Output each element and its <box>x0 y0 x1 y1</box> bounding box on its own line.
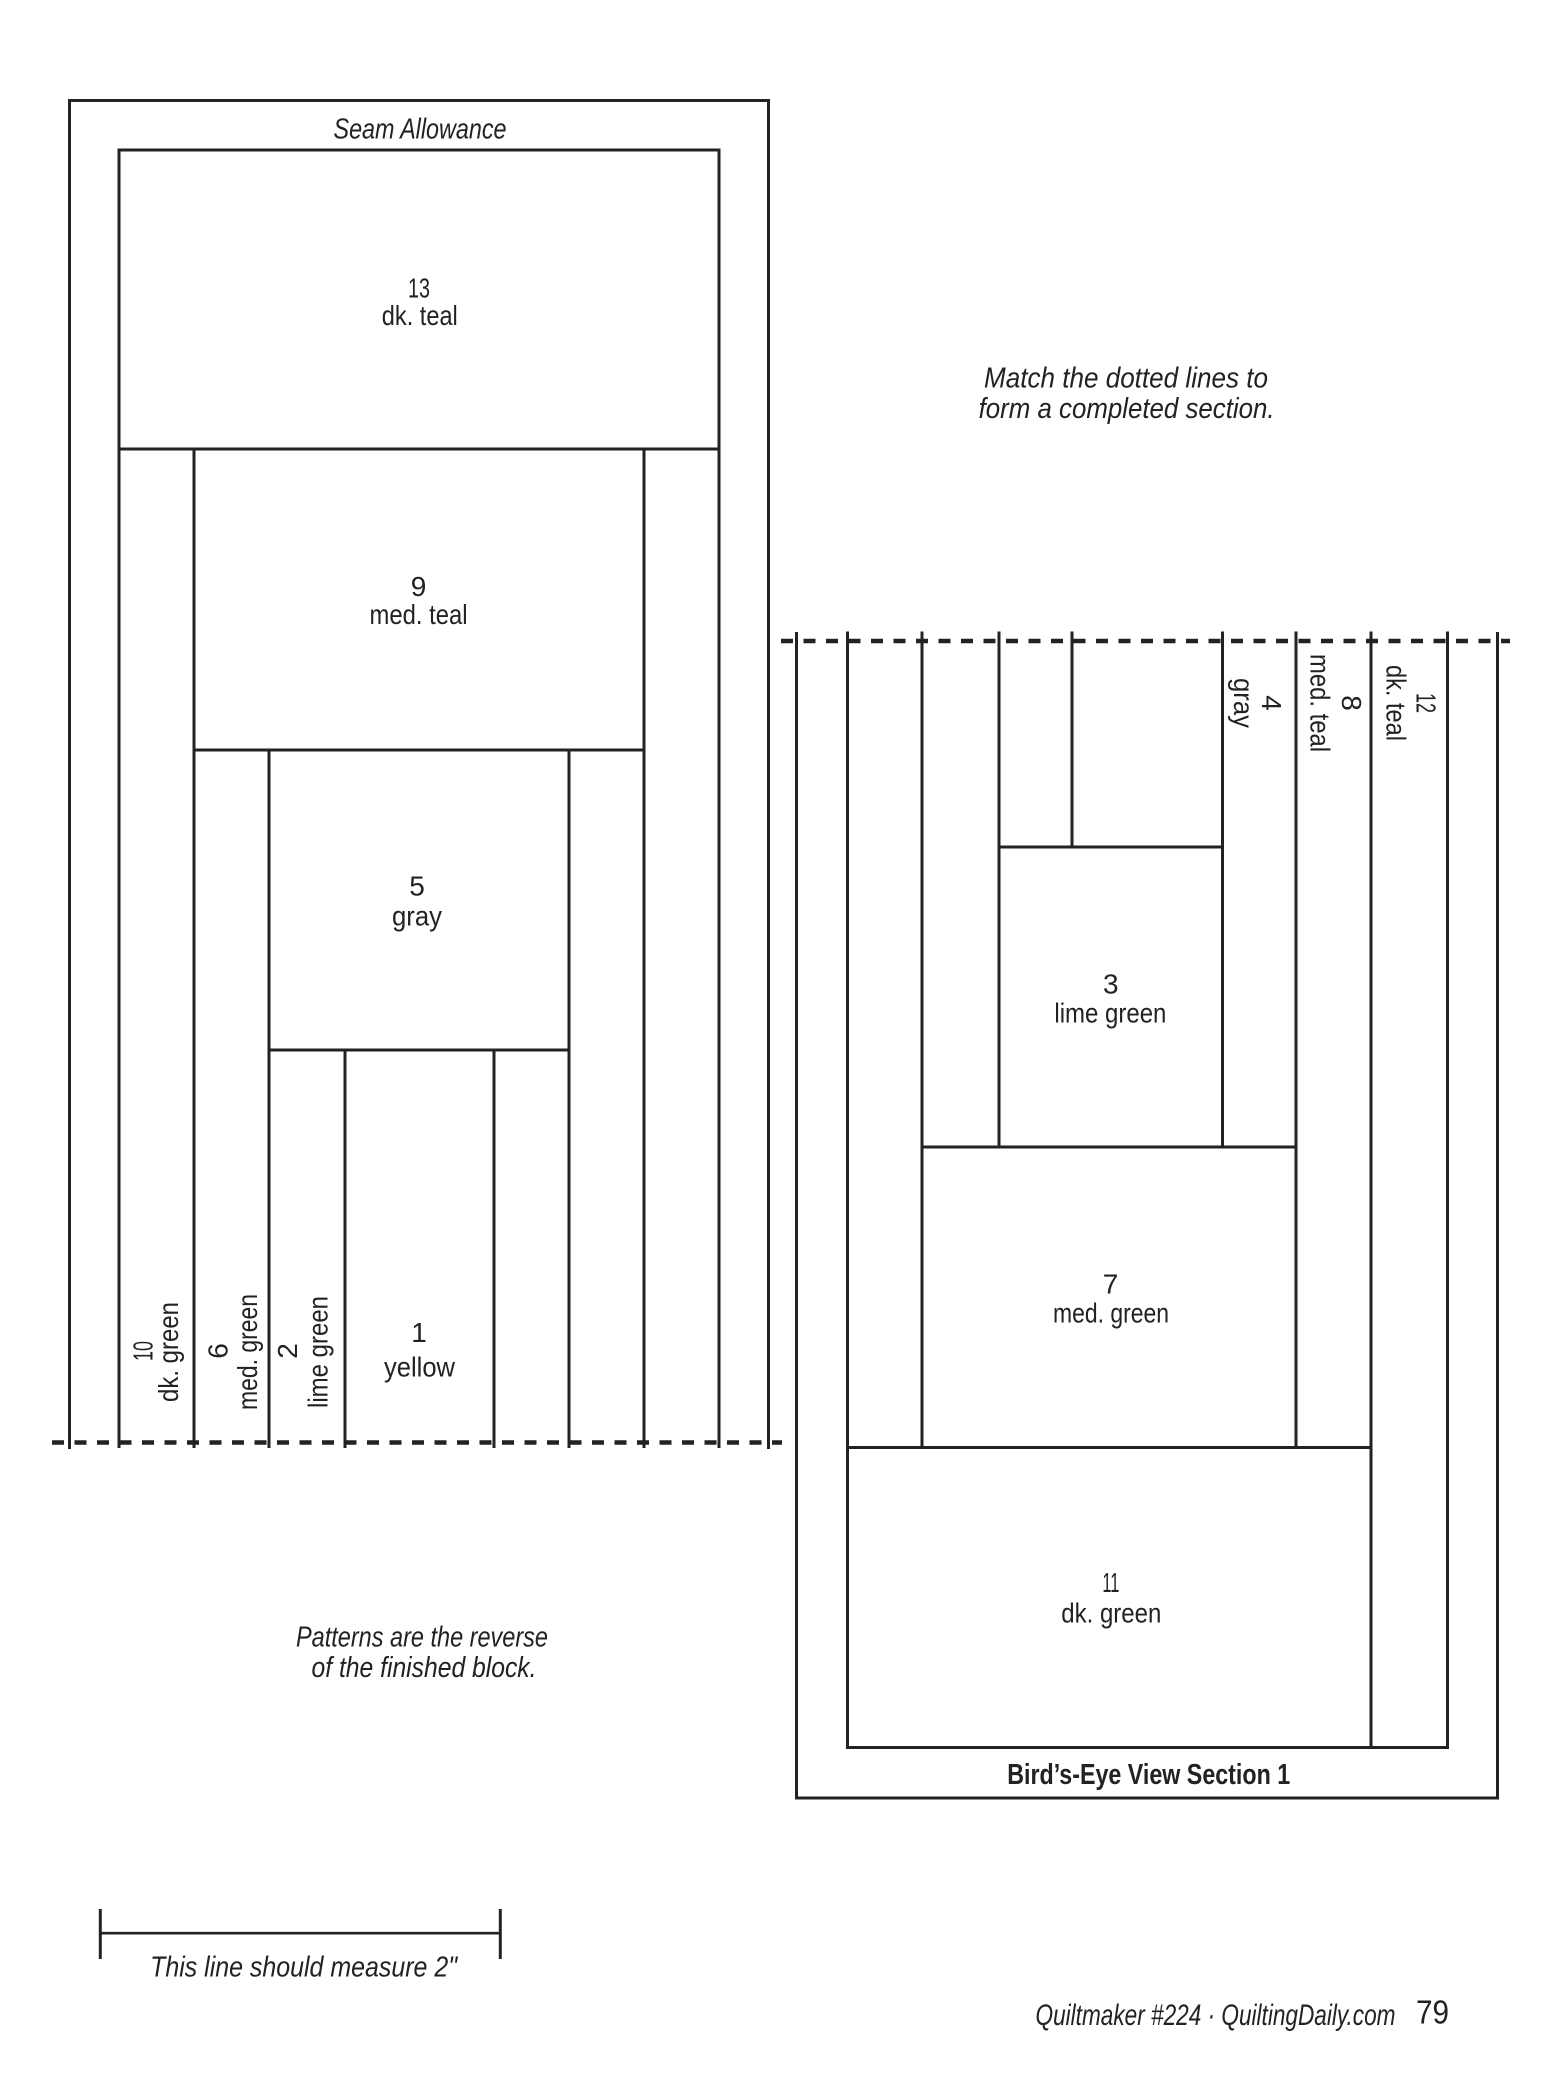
svg-text:Patterns are the reverse: Patterns are the reverse <box>296 1621 548 1653</box>
svg-text:yellow: yellow <box>384 1351 456 1382</box>
svg-text:dk. green: dk. green <box>1061 1597 1161 1628</box>
svg-text:79: 79 <box>1416 1994 1449 2031</box>
svg-text:med. green: med. green <box>1053 1297 1169 1328</box>
svg-text:13: 13 <box>408 272 430 303</box>
svg-text:lime green: lime green <box>1054 997 1166 1028</box>
svg-text:8: 8 <box>1336 695 1367 711</box>
svg-text:Seam Allowance: Seam Allowance <box>334 114 507 146</box>
svg-text:dk. teal: dk. teal <box>1381 665 1412 741</box>
svg-text:dk. teal: dk. teal <box>382 300 458 331</box>
svg-text:1: 1 <box>411 1317 427 1348</box>
svg-text:This line should measure 2": This line should measure 2" <box>150 1952 458 1984</box>
svg-text:5: 5 <box>409 871 425 902</box>
svg-text:gray: gray <box>1228 678 1259 728</box>
svg-text:med. teal: med. teal <box>370 599 468 630</box>
svg-text:lime green: lime green <box>303 1296 334 1408</box>
svg-text:dk. green: dk. green <box>153 1302 184 1402</box>
svg-text:med. green: med. green <box>232 1294 263 1410</box>
svg-text:med. teal: med. teal <box>1305 654 1336 752</box>
svg-text:11: 11 <box>1102 1567 1119 1598</box>
svg-text:3: 3 <box>1103 968 1119 999</box>
svg-text:form a completed section.: form a completed section. <box>979 393 1275 425</box>
svg-text:Match the dotted lines to: Match the dotted lines to <box>984 362 1268 394</box>
svg-text:9: 9 <box>411 571 427 602</box>
svg-text:7: 7 <box>1103 1268 1119 1299</box>
svg-text:Quiltmaker #224 · QuiltingDail: Quiltmaker #224 · QuiltingDaily.com <box>1036 1999 1396 2032</box>
svg-text:6: 6 <box>203 1343 234 1359</box>
svg-text:4: 4 <box>1256 695 1287 711</box>
svg-text:2: 2 <box>272 1343 303 1359</box>
svg-text:of the finished block.: of the finished block. <box>312 1652 537 1684</box>
svg-text:Bird’s-Eye View Section 1: Bird’s-Eye View Section 1 <box>1007 1759 1290 1791</box>
svg-text:12: 12 <box>1411 693 1442 713</box>
svg-text:gray: gray <box>392 901 442 932</box>
